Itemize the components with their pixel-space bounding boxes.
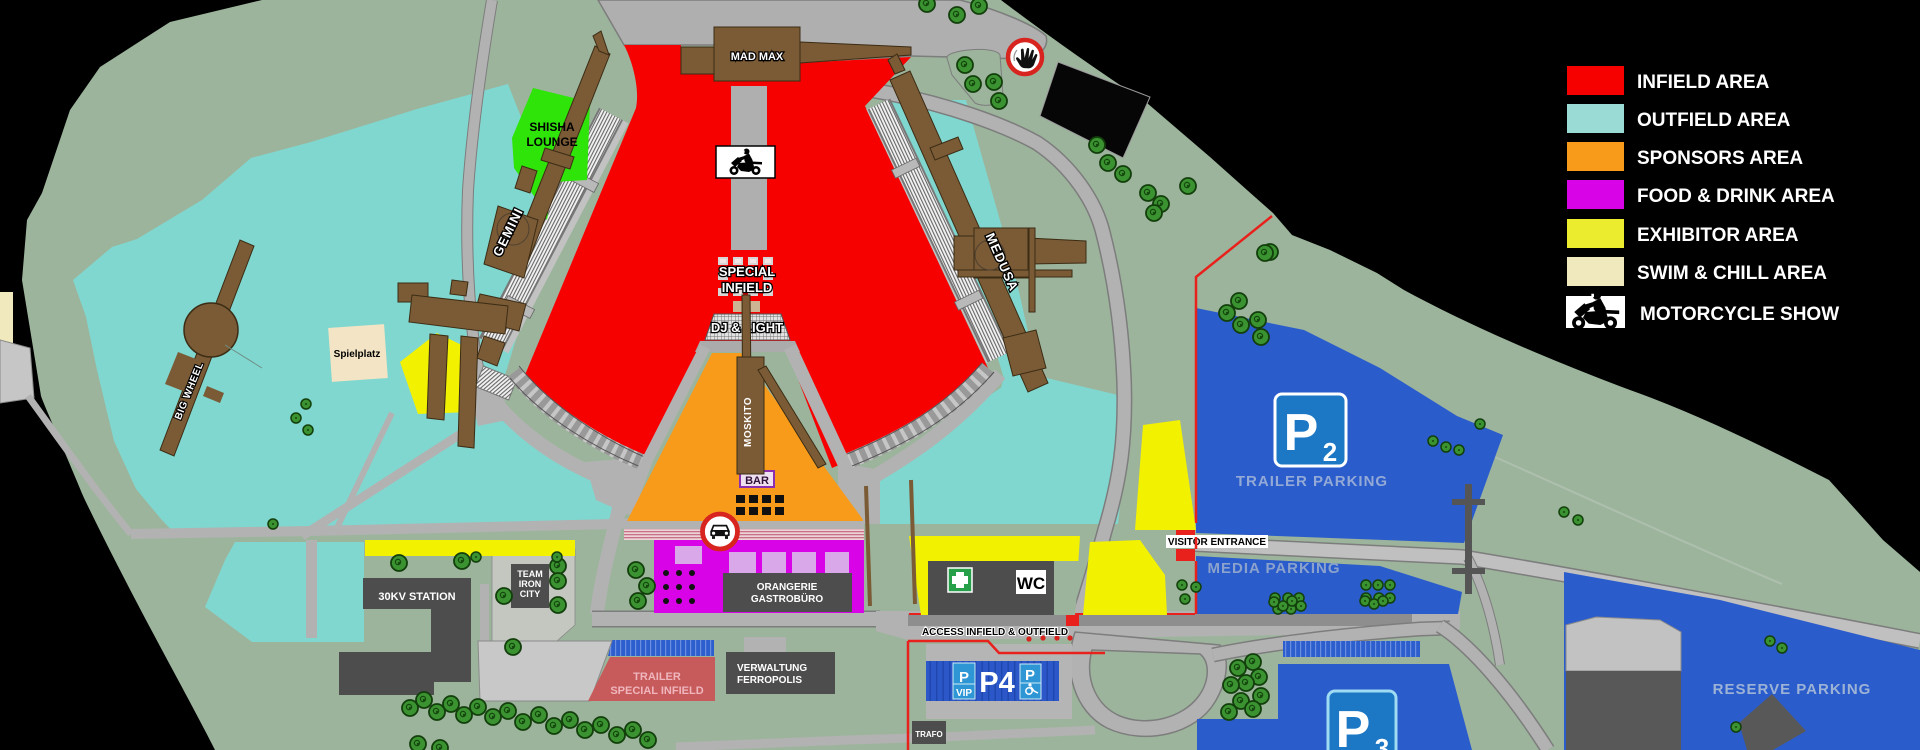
svg-text:INFIELD: INFIELD	[722, 280, 773, 295]
svg-text:P: P	[959, 669, 969, 686]
svg-text:SPECIAL: SPECIAL	[719, 264, 775, 279]
svg-text:VISITOR ENTRANCE: VISITOR ENTRANCE	[1168, 537, 1266, 548]
svg-text:EXHIBITOR AREA: EXHIBITOR AREA	[1637, 225, 1799, 246]
svg-text:TRAILER: TRAILER	[633, 671, 681, 683]
svg-text:MOTORCYCLE SHOW: MOTORCYCLE SHOW	[1640, 304, 1839, 325]
svg-text:GASTROBÜRO: GASTROBÜRO	[751, 592, 823, 605]
svg-text:TRAILER PARKING: TRAILER PARKING	[1236, 473, 1388, 490]
svg-text:SPONSORS AREA: SPONSORS AREA	[1637, 148, 1803, 169]
svg-text:MEDIA PARKING: MEDIA PARKING	[1208, 560, 1341, 577]
svg-text:P: P	[1025, 667, 1035, 684]
svg-text:BAR: BAR	[745, 475, 769, 487]
svg-text:RESERVE PARKING: RESERVE PARKING	[1713, 681, 1872, 698]
svg-text:WC: WC	[1017, 574, 1045, 593]
svg-text:MOSKITO: MOSKITO	[743, 397, 754, 447]
svg-text:VERWALTUNG: VERWALTUNG	[737, 663, 807, 674]
svg-text:VIP: VIP	[956, 688, 972, 699]
svg-text:MAD MAX: MAD MAX	[731, 51, 784, 63]
svg-text:ACCESS INFIELD & OUTFIELD: ACCESS INFIELD & OUTFIELD	[922, 627, 1068, 638]
svg-text:SWIM & CHILL AREA: SWIM & CHILL AREA	[1637, 263, 1827, 284]
svg-text:TRAFO: TRAFO	[915, 730, 943, 739]
svg-text:FOOD & DRINK AREA: FOOD & DRINK AREA	[1637, 186, 1835, 207]
svg-text:P4: P4	[979, 667, 1014, 699]
svg-text:TEAM: TEAM	[517, 569, 543, 579]
svg-text:SHISHA: SHISHA	[529, 120, 575, 134]
svg-text:P: P	[1336, 701, 1371, 750]
svg-text:IRON: IRON	[519, 579, 542, 589]
svg-text:CITY: CITY	[520, 589, 541, 599]
svg-text:P: P	[1284, 404, 1319, 462]
svg-text:FERROPOLIS: FERROPOLIS	[737, 675, 802, 686]
svg-text:30KV STATION: 30KV STATION	[378, 591, 455, 603]
svg-text:2: 2	[1323, 437, 1337, 467]
svg-text:INFIELD AREA: INFIELD AREA	[1637, 72, 1770, 93]
svg-text:Spielplatz: Spielplatz	[334, 349, 381, 360]
svg-text:SPECIAL INFIELD: SPECIAL INFIELD	[610, 685, 703, 697]
svg-text:LOUNGE: LOUNGE	[526, 135, 577, 149]
svg-text:OUTFIELD AREA: OUTFIELD AREA	[1637, 110, 1791, 131]
svg-text:ORANGERIE: ORANGERIE	[757, 582, 818, 593]
svg-text:3: 3	[1375, 733, 1389, 750]
